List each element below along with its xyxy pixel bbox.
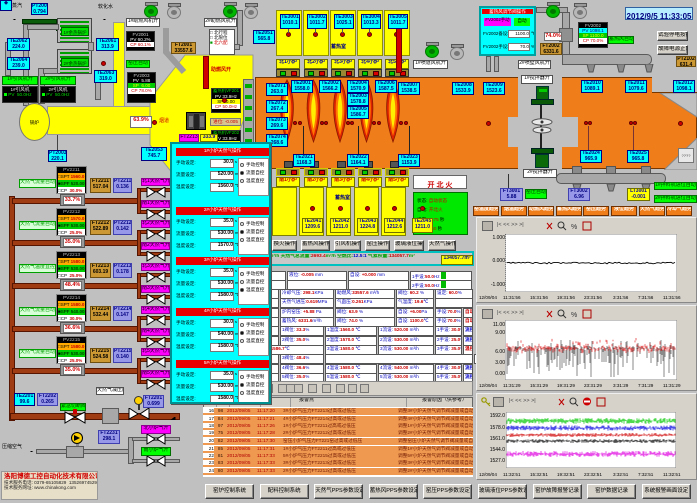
svg-text:%: % xyxy=(571,312,577,319)
svg-text:%: % xyxy=(571,224,577,231)
